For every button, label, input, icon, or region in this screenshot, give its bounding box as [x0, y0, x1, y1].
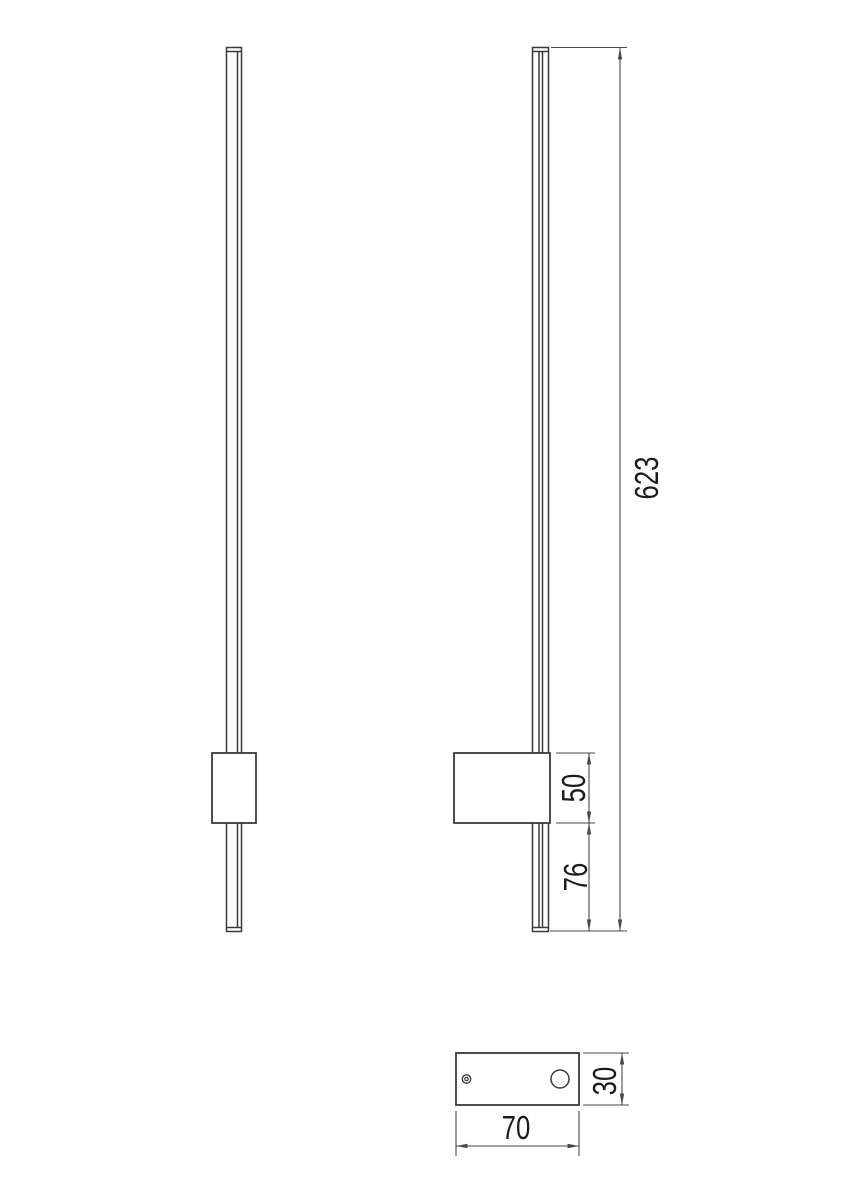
object-linework	[212, 48, 579, 1106]
drawing-linework	[0, 0, 848, 1200]
dim-label-total-height: 623	[626, 431, 666, 525]
side-view	[454, 48, 550, 932]
front-mounting-box	[212, 753, 256, 823]
dim-label-box-height: 50	[553, 741, 593, 835]
front-view	[212, 48, 256, 932]
dim-label-base-width: 70	[469, 1107, 563, 1147]
dimension-arrowheads	[456, 48, 624, 1148]
dim-label-box-to-end: 76	[555, 830, 595, 924]
arrow-total-bottom	[618, 920, 622, 932]
base-plate	[456, 1053, 579, 1105]
side-mounting-box	[454, 753, 550, 823]
bottom-view	[456, 1053, 579, 1105]
technical-drawing-canvas: 623 50 76 30 70	[0, 0, 848, 1200]
arrow-total-top	[618, 48, 622, 60]
arrow-width-left	[456, 1144, 468, 1148]
dim-label-base-depth: 30	[584, 1034, 624, 1128]
arrow-width-right	[568, 1144, 580, 1148]
